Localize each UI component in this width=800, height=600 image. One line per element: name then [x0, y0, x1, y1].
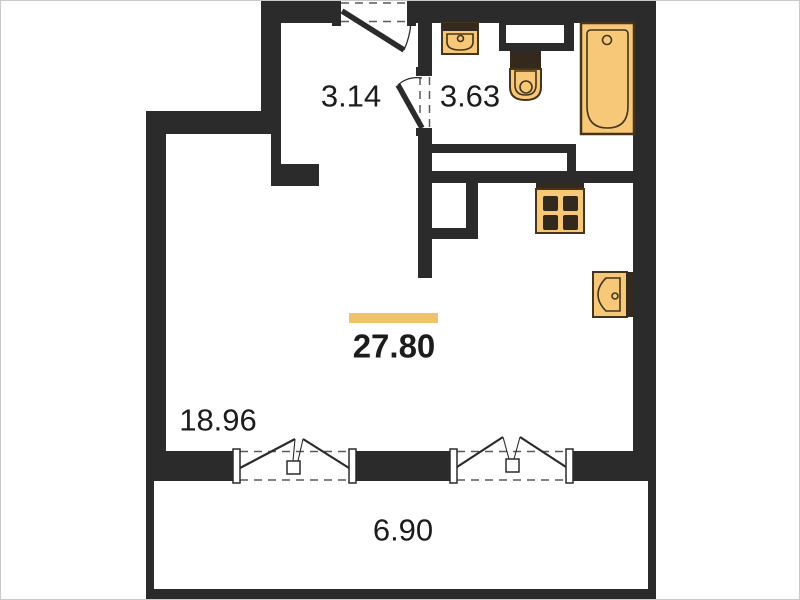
stove-icon — [536, 183, 584, 233]
wall-segment — [418, 23, 432, 67]
total-area-label: 27.80 — [353, 328, 436, 365]
door-jamb — [332, 1, 341, 26]
wall-segment — [418, 144, 576, 153]
washbasin-icon — [442, 23, 478, 54]
balcony-area-label: 6.90 — [373, 513, 433, 548]
wall-segment — [271, 164, 319, 186]
interior-door-icon — [398, 77, 430, 128]
duct-niche-icon — [499, 15, 574, 51]
balcony-wall — [146, 481, 154, 594]
window-left-icon — [233, 439, 356, 483]
wall-segment — [146, 111, 166, 481]
wall-segment — [567, 153, 576, 171]
hallway-area-label: 3.14 — [321, 79, 381, 114]
wall-segment — [633, 1, 656, 451]
balcony-wall — [146, 589, 656, 599]
wall-segment — [418, 136, 432, 278]
floor-plan: 3.14 3.63 27.80 18.96 6.90 — [0, 0, 800, 600]
door-jamb — [416, 67, 432, 76]
toilet-icon — [510, 51, 541, 100]
entry-door-icon — [341, 3, 411, 50]
living-zone-area-label: 18.96 — [179, 403, 257, 438]
wall-segment — [146, 451, 234, 481]
wall-segment — [355, 451, 451, 481]
wall-segment — [418, 228, 478, 239]
door-jamb — [416, 128, 432, 136]
wall-segment — [466, 183, 478, 228]
wall-segment — [418, 171, 633, 183]
bathtub-icon — [581, 23, 634, 134]
balcony-wall — [648, 481, 656, 594]
wall-segment — [146, 111, 281, 134]
bathroom-area-label: 3.63 — [440, 79, 500, 114]
wall-segment — [573, 451, 656, 481]
kitchen-sink-icon — [593, 272, 634, 317]
floor-plan-drawing: 3.14 3.63 27.80 18.96 6.90 — [1, 1, 800, 600]
window-right-icon — [450, 437, 573, 483]
total-area-marker — [349, 313, 438, 323]
